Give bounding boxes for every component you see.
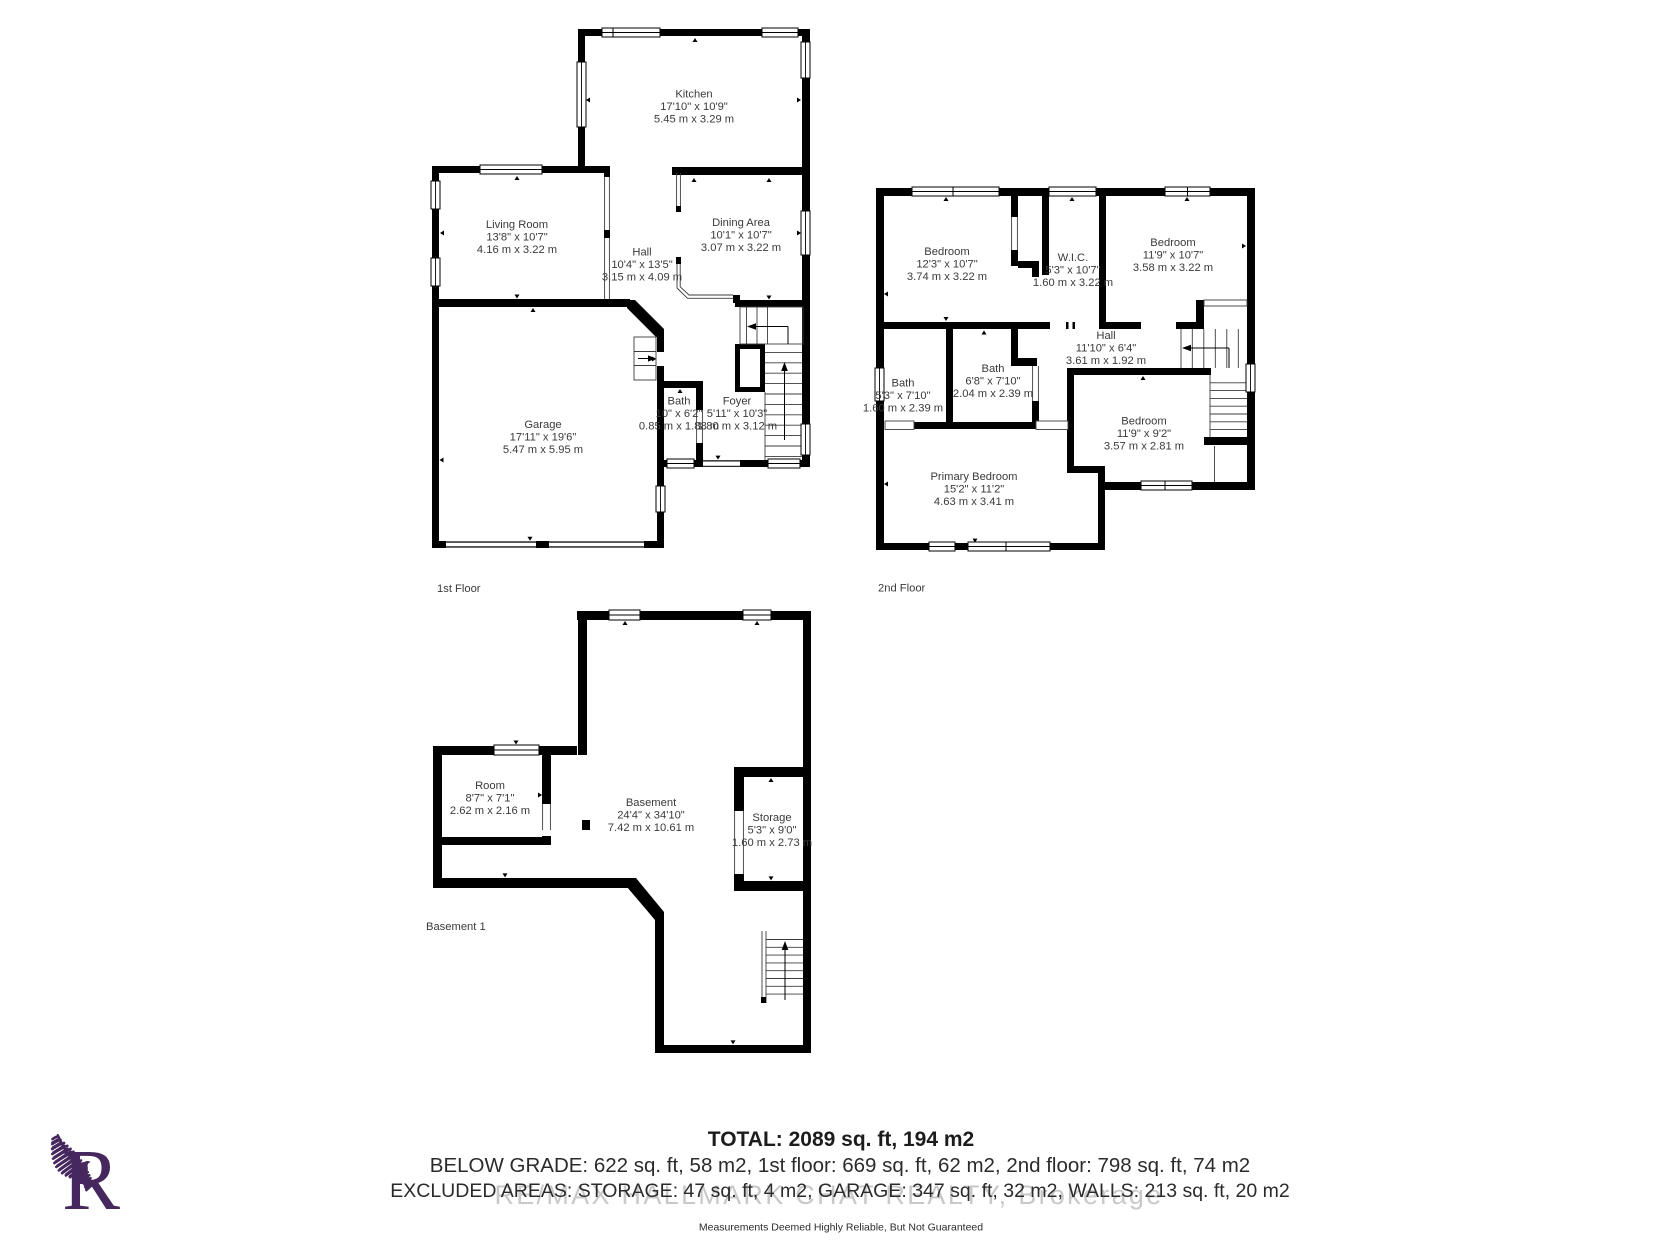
svg-text:1.60 m x 3.22 m: 1.60 m x 3.22 m: [1033, 277, 1113, 289]
svg-text:11'10" x 6'4": 11'10" x 6'4": [1076, 342, 1137, 354]
svg-text:5.45 m x 3.29 m: 5.45 m x 3.29 m: [654, 113, 734, 125]
svg-text:1.60 m x 2.39 m: 1.60 m x 2.39 m: [863, 402, 943, 414]
svg-text:10" x 6'2": 10" x 6'2": [656, 408, 703, 420]
svg-text:12'3" x 10'7": 12'3" x 10'7": [916, 258, 977, 270]
svg-text:Bedroom: Bedroom: [924, 246, 969, 258]
svg-text:24'4" x 34'10": 24'4" x 34'10": [617, 809, 685, 821]
svg-text:Bath: Bath: [891, 378, 914, 390]
svg-text:10'1" x 10'7": 10'1" x 10'7": [710, 229, 771, 241]
svg-text:5'3" x 7'10": 5'3" x 7'10": [875, 390, 930, 402]
svg-text:Bedroom: Bedroom: [1150, 237, 1195, 249]
svg-text:W.I.C.: W.I.C.: [1058, 252, 1088, 264]
svg-text:11'9" x 10'7": 11'9" x 10'7": [1143, 249, 1204, 261]
svg-text:Bath: Bath: [667, 396, 690, 408]
svg-text:17'11" x 19'6": 17'11" x 19'6": [510, 431, 577, 443]
svg-text:Dining Area: Dining Area: [712, 217, 771, 229]
svg-text:TOTAL: 2089 sq. ft, 194 m2: TOTAL: 2089 sq. ft, 194 m2: [708, 1128, 974, 1151]
svg-text:Bedroom: Bedroom: [1121, 416, 1166, 428]
svg-text:1st Floor: 1st Floor: [437, 583, 481, 595]
svg-text:5.47 m x 5.95 m: 5.47 m x 5.95 m: [503, 444, 583, 456]
svg-text:5'11" x 10'3": 5'11" x 10'3": [707, 408, 768, 420]
svg-text:17'10" x 10'9": 17'10" x 10'9": [660, 101, 728, 113]
svg-text:2.04 m x 2.39 m: 2.04 m x 2.39 m: [953, 388, 1033, 400]
svg-text:BELOW GRADE: 622 sq. ft, 58 m2: BELOW GRADE: 622 sq. ft, 58 m2, 1st floo…: [430, 1154, 1250, 1177]
svg-text:15'2" x 11'2": 15'2" x 11'2": [944, 483, 1005, 495]
svg-text:1.80 m x 3.12 m: 1.80 m x 3.12 m: [697, 420, 777, 432]
svg-text:2nd Floor: 2nd Floor: [878, 583, 926, 595]
svg-text:Bath: Bath: [981, 363, 1004, 375]
svg-text:8'7" x 7'1": 8'7" x 7'1": [466, 792, 515, 804]
svg-text:Hall: Hall: [632, 247, 651, 259]
svg-text:11'9" x 9'2": 11'9" x 9'2": [1117, 428, 1171, 440]
svg-text:Measurements Deemed Highly Rel: Measurements Deemed Highly Reliable, But…: [699, 1222, 983, 1234]
svg-text:EXCLUDED AREAS: STORAGE: 47 sq: EXCLUDED AREAS: STORAGE: 47 sq. ft, 4 m2…: [390, 1180, 1290, 1202]
svg-text:3.58 m x 3.22 m: 3.58 m x 3.22 m: [1133, 262, 1213, 274]
svg-text:10'4" x 13'5": 10'4" x 13'5": [611, 259, 672, 271]
svg-text:5'3" x 9'0": 5'3" x 9'0": [748, 824, 797, 836]
svg-text:Primary Bedroom: Primary Bedroom: [930, 471, 1017, 483]
svg-text:2.62 m x 2.16 m: 2.62 m x 2.16 m: [450, 805, 530, 817]
svg-text:3.15 m x 4.09 m: 3.15 m x 4.09 m: [602, 271, 682, 283]
svg-text:5'3" x 10'7": 5'3" x 10'7": [1045, 264, 1100, 276]
svg-text:1.60 m x 2.73 m: 1.60 m x 2.73 m: [732, 837, 812, 849]
svg-text:Living Room: Living Room: [486, 219, 548, 231]
svg-text:3.61 m x 1.92 m: 3.61 m x 1.92 m: [1066, 355, 1146, 367]
svg-text:13'8" x 10'7": 13'8" x 10'7": [486, 231, 547, 243]
svg-text:Basement: Basement: [626, 797, 677, 809]
svg-text:Basement 1: Basement 1: [426, 921, 486, 933]
svg-text:Room: Room: [475, 780, 505, 792]
svg-text:6'8" x 7'10": 6'8" x 7'10": [965, 375, 1020, 387]
svg-text:4.16 m x 3.22 m: 4.16 m x 3.22 m: [477, 244, 557, 256]
svg-text:3.07 m x 3.22 m: 3.07 m x 3.22 m: [701, 242, 781, 254]
svg-text:Storage: Storage: [752, 812, 791, 824]
svg-text:Garage: Garage: [524, 419, 561, 431]
svg-text:4.63 m x 3.41 m: 4.63 m x 3.41 m: [934, 496, 1014, 508]
svg-text:3.74 m x 3.22 m: 3.74 m x 3.22 m: [907, 271, 987, 283]
svg-text:7.42 m x 10.61 m: 7.42 m x 10.61 m: [608, 822, 694, 834]
svg-text:3.57 m x 2.81 m: 3.57 m x 2.81 m: [1104, 440, 1184, 452]
svg-text:Foyer: Foyer: [723, 396, 752, 408]
svg-text:Kitchen: Kitchen: [675, 89, 712, 101]
svg-text:Hall: Hall: [1096, 330, 1115, 342]
